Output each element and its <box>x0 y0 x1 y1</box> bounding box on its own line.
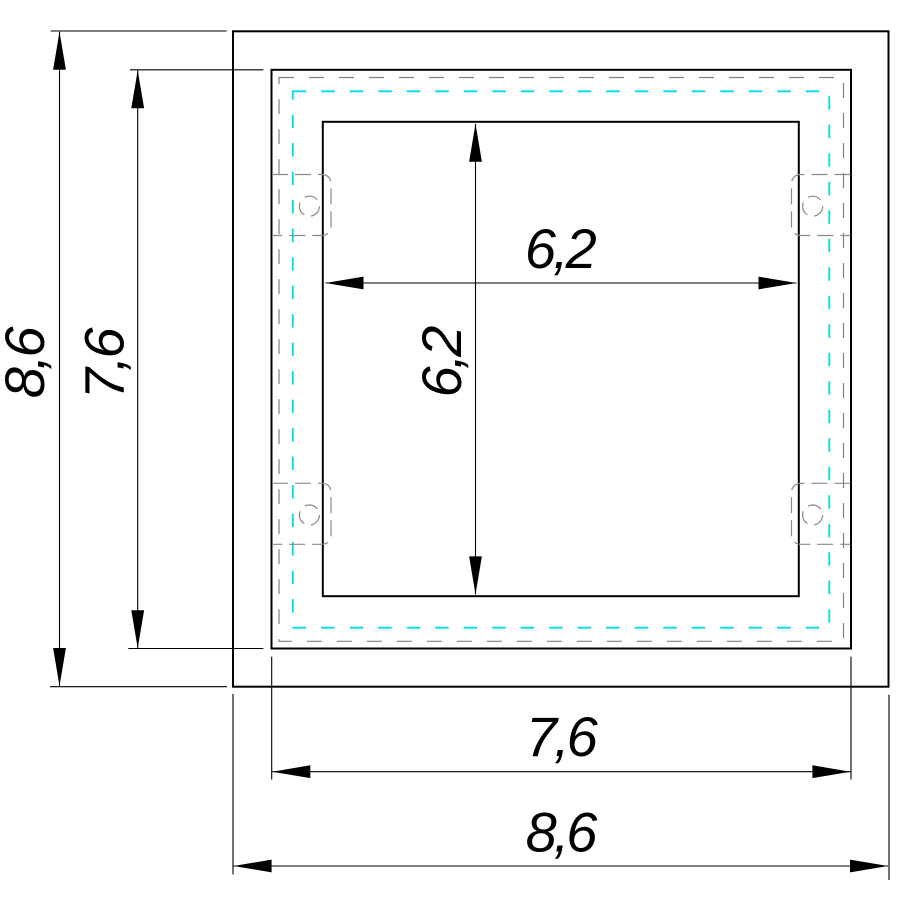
svg-text:7,6: 7,6 <box>73 327 136 400</box>
svg-text:6,2: 6,2 <box>525 217 597 280</box>
svg-text:8,6: 8,6 <box>526 801 599 864</box>
svg-text:8,6: 8,6 <box>0 326 56 399</box>
svg-text:6,2: 6,2 <box>410 326 473 398</box>
svg-text:7,6: 7,6 <box>526 705 599 768</box>
